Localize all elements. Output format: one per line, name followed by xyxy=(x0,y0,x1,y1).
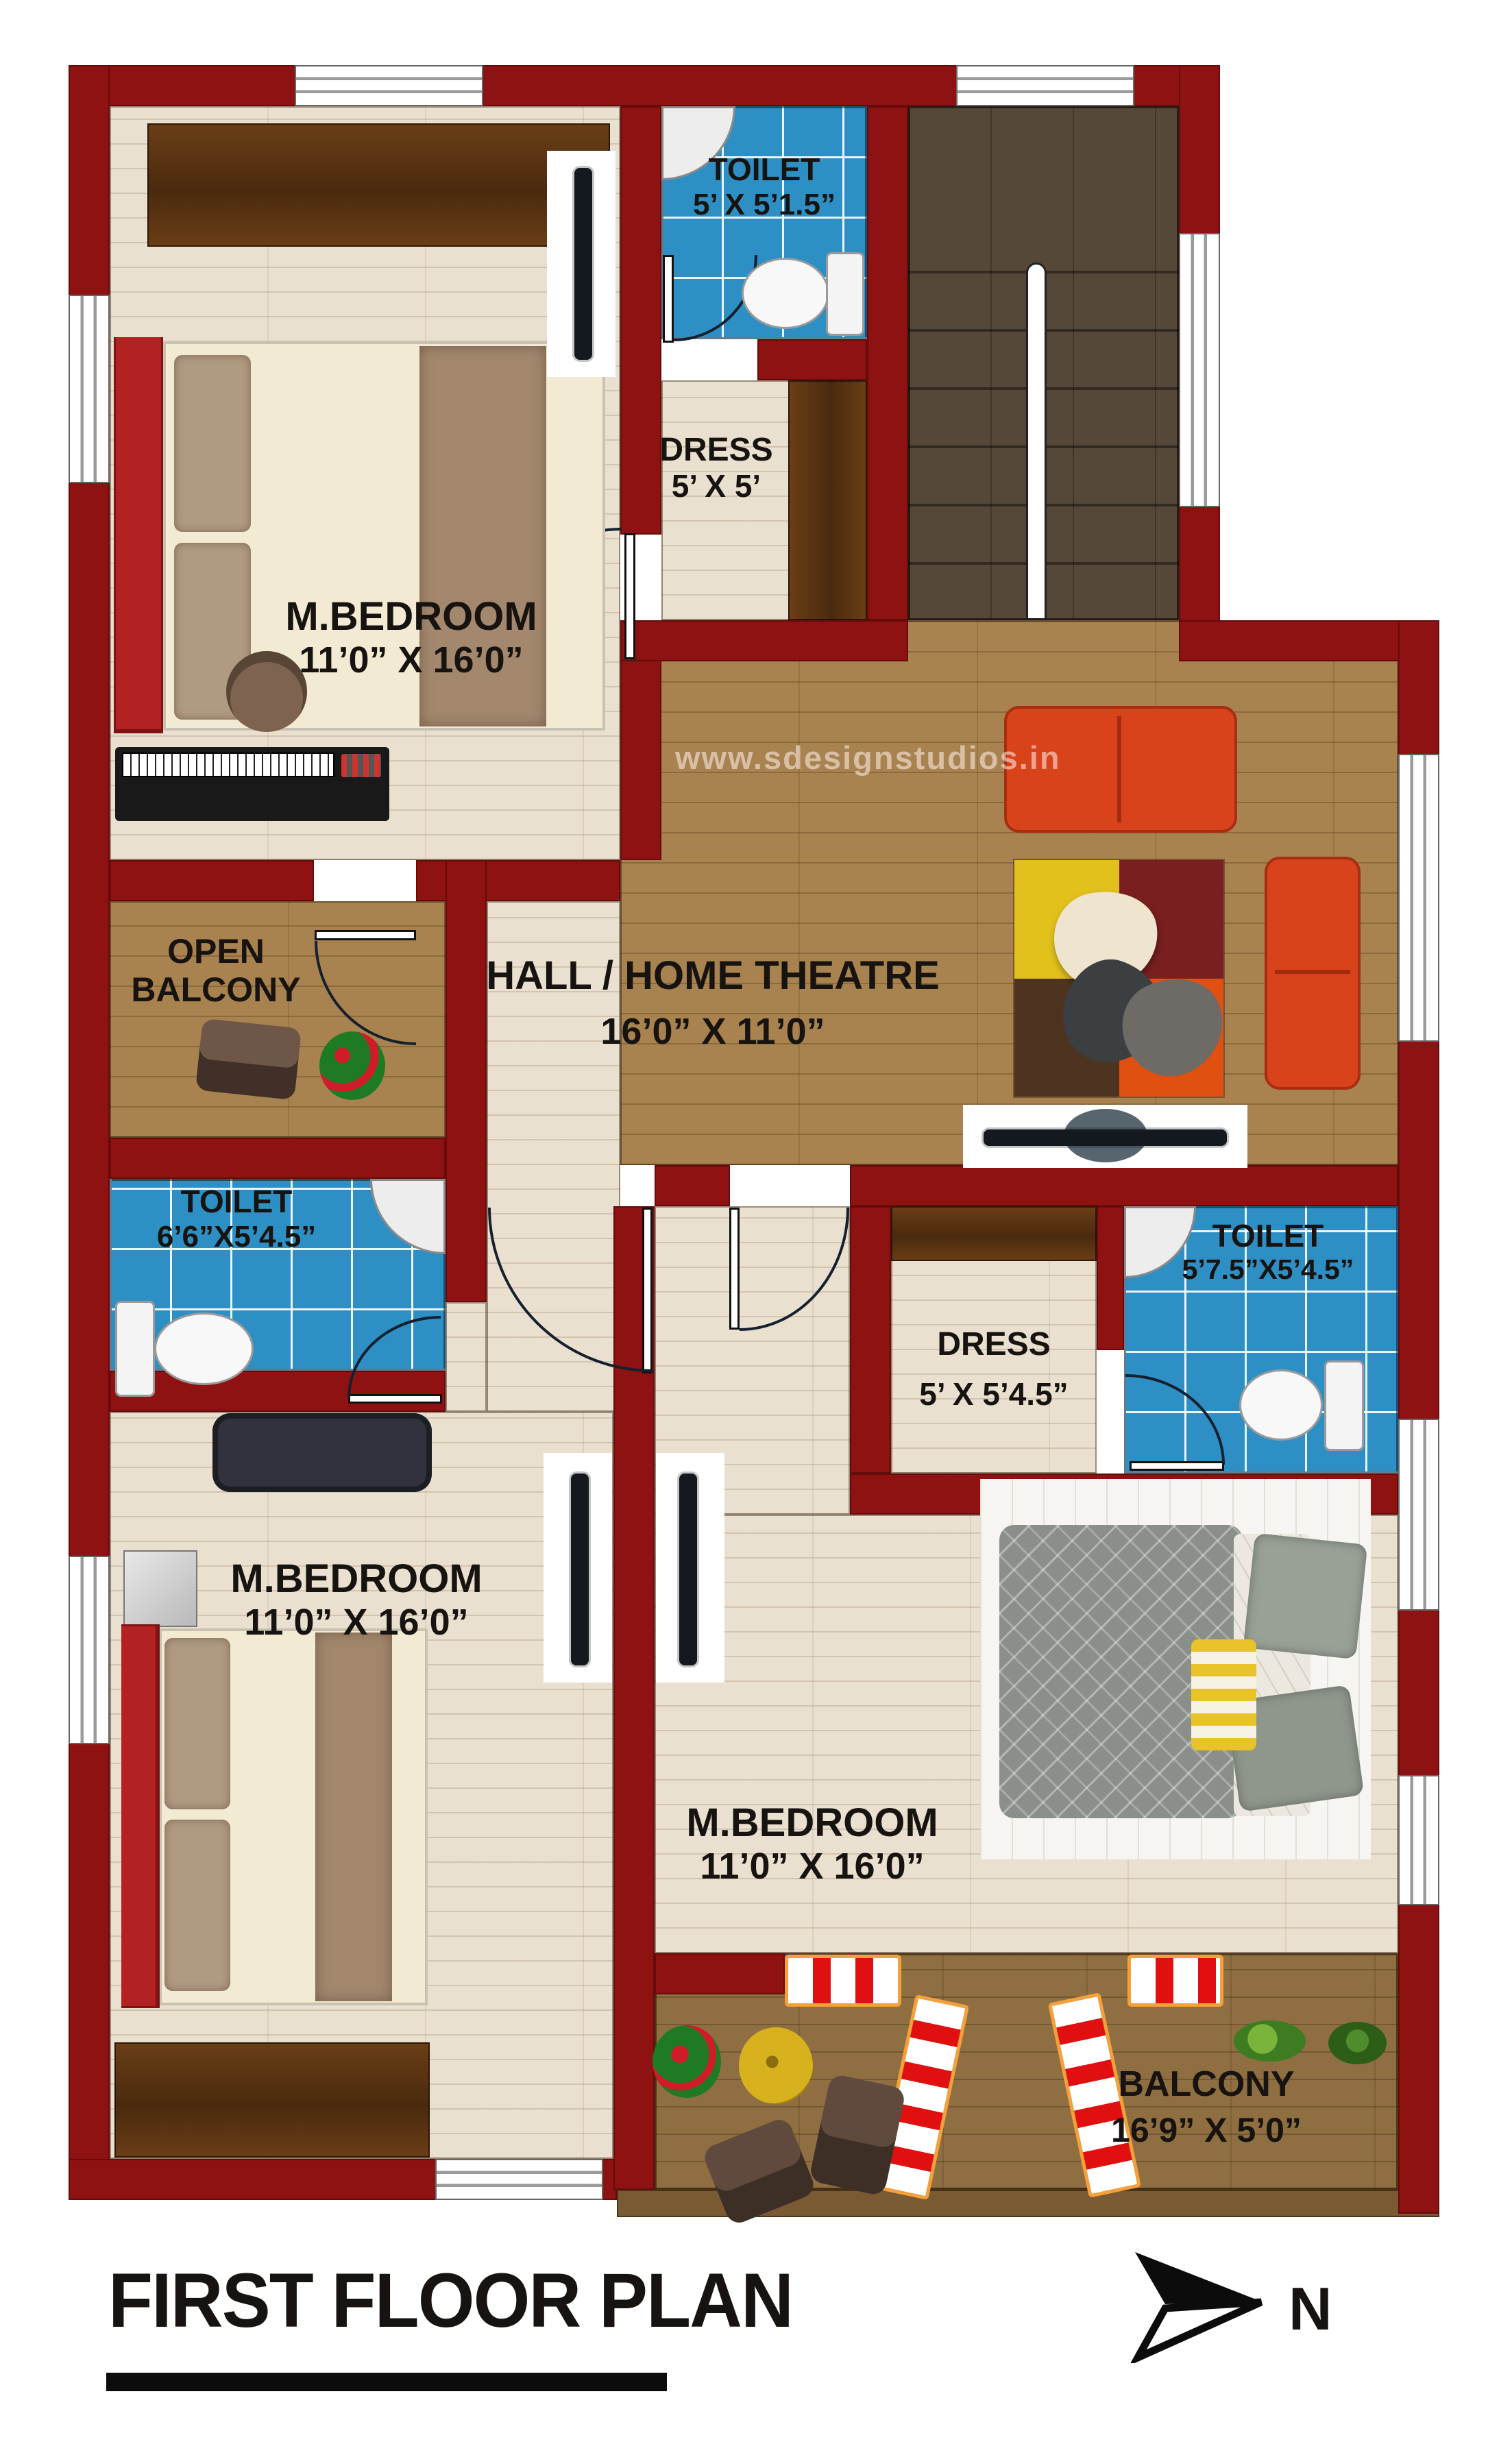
toilet3-label: TOILET 5’7.5”X5’4.5” xyxy=(1138,1219,1398,1285)
balcony-name: BALCONY xyxy=(1014,2064,1398,2104)
window-bottom-bedroom2 xyxy=(435,2159,603,2200)
window-left-bedroom2 xyxy=(69,1556,110,1744)
balcony-flower-pot xyxy=(653,2025,721,2098)
balcony-label: BALCONY 16’9” X 5’0” xyxy=(1014,2064,1398,2149)
north-arrow-upper xyxy=(1135,2252,1261,2304)
bedroom1-piano-keys xyxy=(122,753,334,777)
bedroom2-bed-pillow-2 xyxy=(164,1820,230,1991)
toilet3-wc-bowl xyxy=(1239,1369,1323,1441)
window-top-bedroom1 xyxy=(295,65,483,106)
open-balcony-flower-pot xyxy=(319,1031,385,1100)
toilet3-dims: 5’7.5”X5’4.5” xyxy=(1138,1254,1398,1286)
staircase-rail xyxy=(1026,262,1047,620)
north-arrow-icon xyxy=(1131,2247,1275,2363)
bedroom3-dims: 11’0” X 16’0” xyxy=(607,1846,1018,1887)
wall-hall-bottom-mid xyxy=(655,1165,730,1206)
bedroom1-bed-pillow-1 xyxy=(174,355,251,532)
title-underline xyxy=(106,2373,667,2391)
wall-bedroom1-right-lower xyxy=(620,658,661,860)
bedroom3-pillow-yellow xyxy=(1191,1639,1256,1750)
toilet1-label: TOILET 5’ X 5’1.5” xyxy=(661,152,867,221)
wall-openbalcony-right xyxy=(446,860,487,1302)
bedroom1-tv xyxy=(574,168,592,360)
wall-dress2-left xyxy=(850,1206,891,1474)
bedroom2-dims: 11’0” X 16’0” xyxy=(151,1602,562,1643)
bedroom1-bed-headboard xyxy=(114,337,163,733)
dress2-name: DRESS xyxy=(891,1326,1097,1363)
balcony-bush-2 xyxy=(1328,2022,1387,2064)
toilet1-name: TOILET xyxy=(661,152,867,188)
bedroom3-name: M.BEDROOM xyxy=(607,1801,1018,1846)
bedroom2-label: M.BEDROOM 11’0” X 16’0” xyxy=(151,1557,562,1643)
toilet2-name: TOILET xyxy=(120,1184,353,1220)
bedroom1-piano-controls xyxy=(341,754,381,777)
wall-toilet2-top xyxy=(110,1138,446,1179)
open-balcony-chair xyxy=(195,1018,302,1101)
bedroom1-label: M.BEDROOM 11’0” X 16’0” xyxy=(206,595,617,681)
bedroom2-bed-headboard xyxy=(121,1624,160,2008)
hall-sofa-right-seam xyxy=(1275,970,1350,974)
toilet1-wc-tank xyxy=(826,252,864,336)
floor-plan-page: { "title": "FIRST FLOOR PLAN", "watermar… xyxy=(0,0,1512,2457)
toilet2-dims: 6’6”X5’4.5” xyxy=(120,1220,353,1254)
page-title: FIRST FLOOR PLAN xyxy=(108,2256,792,2345)
window-right-bedroom3-a xyxy=(1398,1419,1439,1611)
balcony-bush-1 xyxy=(1234,2020,1306,2062)
north-letter: N xyxy=(1289,2274,1332,2344)
floor-plan-canvas: www.sdesignstudios.in TOILET 5’ X 5’1.5” xyxy=(0,0,1512,2457)
bedroom2-name: M.BEDROOM xyxy=(151,1557,562,1602)
hall-label: HALL / HOME THEATRE 16’0” X 11’0” xyxy=(473,954,953,1052)
wall-toilet1-right xyxy=(867,106,908,620)
watermark-text: www.sdesignstudios.in xyxy=(675,739,1141,777)
bedroom3-label: M.BEDROOM 11’0” X 16’0” xyxy=(607,1801,1018,1887)
toilet2-label: TOILET 6’6”X5’4.5” xyxy=(120,1184,353,1254)
bedroom2-bed-pillow-1 xyxy=(164,1638,230,1809)
bedroom2-sofa xyxy=(212,1413,432,1492)
balcony-railing-right xyxy=(1127,1955,1223,2007)
open-balcony-label: OPEN BALCONY xyxy=(113,932,319,1009)
wall-dress2-toilet3-top xyxy=(850,1165,1398,1206)
wall-bedroom1-bottom-left xyxy=(110,860,314,901)
hall-tv xyxy=(984,1129,1227,1146)
bedroom1-dims: 11’0” X 16’0” xyxy=(206,639,617,681)
bedroom1-name: M.BEDROOM xyxy=(206,595,617,639)
door-leaf-open-balcony xyxy=(315,930,416,940)
toilet2-wc-bowl xyxy=(154,1312,254,1385)
toilet2-wc-tank xyxy=(115,1301,155,1397)
bedroom2-tv xyxy=(571,1474,589,1665)
toilet3-wc-tank xyxy=(1324,1360,1364,1451)
window-right-bedroom3-b xyxy=(1398,1775,1439,1905)
toilet3-name: TOILET xyxy=(1138,1219,1398,1254)
window-left-bedroom1 xyxy=(69,295,110,483)
wall-toilet1-dress1-divider xyxy=(757,339,867,380)
bedroom2-bed-blanket xyxy=(315,1633,392,2001)
bedroom3-tv xyxy=(679,1474,697,1665)
hall-dims: 16’0” X 11’0” xyxy=(473,1011,953,1052)
dress1-label: DRESS 5’ X 5’ xyxy=(627,432,805,504)
dress1-dims: 5’ X 5’ xyxy=(627,469,805,504)
corridor-left-floor-gap xyxy=(446,1302,487,1412)
window-top-stair xyxy=(956,65,1134,106)
open-balcony-name-line1: OPEN xyxy=(113,932,319,970)
dress2-wardrobe xyxy=(891,1206,1097,1261)
door-leaf-bedroom1 xyxy=(624,533,635,659)
dress2-dims: 5’ X 5’4.5” xyxy=(891,1377,1097,1413)
bedroom2-wardrobe xyxy=(114,2042,430,2157)
balcony-yellow-plant xyxy=(739,2027,813,2104)
bedroom3-pillow-1 xyxy=(1243,1533,1368,1659)
wall-hall-top xyxy=(620,620,908,661)
open-balcony-name-line2: BALCONY xyxy=(113,970,319,1009)
bedroom1-wardrobe xyxy=(147,123,610,247)
north-arrow-lower xyxy=(1138,2302,1261,2358)
wall-balcony-top-left xyxy=(655,1953,785,1994)
window-right-hall xyxy=(1398,754,1439,1042)
window-stair-right xyxy=(1179,233,1220,507)
dress2-label: DRESS 5’ X 5’4.5” xyxy=(891,1326,1097,1412)
balcony-dims: 16’9” X 5’0” xyxy=(1014,2111,1398,2149)
door-leaf-corridor-b xyxy=(729,1208,740,1330)
toilet1-dims: 5’ X 5’1.5” xyxy=(661,188,867,221)
toilet1-wc-bowl xyxy=(742,258,829,329)
hall-name: HALL / HOME THEATRE xyxy=(473,954,953,999)
balcony-railing-left xyxy=(785,1955,901,2007)
wall-dress2-toilet3-divider xyxy=(1097,1206,1124,1350)
dress1-name: DRESS xyxy=(627,432,805,469)
door-leaf-toilet1 xyxy=(663,255,674,343)
